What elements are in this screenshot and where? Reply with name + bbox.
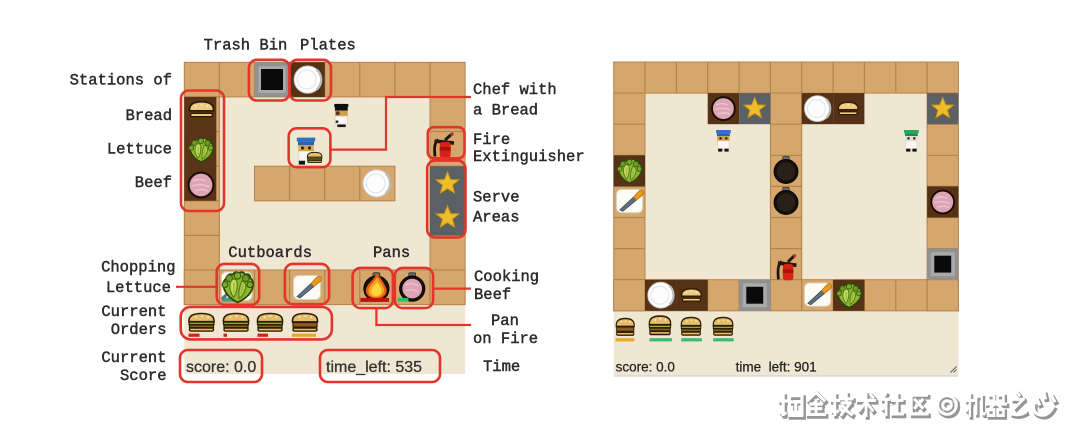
svg-text:Beef: Beef (474, 286, 511, 304)
svg-text:Areas: Areas (473, 209, 520, 227)
svg-text:Plates: Plates (300, 37, 356, 55)
svg-text:Trash Bin: Trash Bin (204, 37, 288, 55)
svg-text:Orders: Orders (111, 321, 167, 339)
svg-text:Lettuce: Lettuce (106, 279, 171, 297)
svg-text:time left: 901: time left: 901 (736, 360, 817, 375)
svg-text:score: 0.0: score: 0.0 (616, 360, 675, 375)
svg-text:score: 0.0: score: 0.0 (186, 359, 256, 376)
svg-text:Time: Time (483, 358, 520, 376)
svg-text:Cooking: Cooking (474, 268, 539, 286)
svg-text:Chopping: Chopping (101, 259, 175, 277)
svg-text:Current: Current (101, 303, 166, 321)
svg-text:Score: Score (120, 367, 167, 385)
svg-text:Cutboards: Cutboards (228, 244, 312, 262)
svg-text:Chef with: Chef with (473, 81, 557, 99)
svg-text:Bread: Bread (125, 107, 172, 125)
svg-text:Extinguisher: Extinguisher (473, 148, 585, 166)
svg-text:a Bread: a Bread (473, 101, 538, 119)
svg-text:on Fire: on Fire (473, 330, 538, 348)
svg-text:Fire: Fire (473, 131, 510, 149)
svg-text:Beef: Beef (135, 174, 172, 192)
svg-text:Serve: Serve (473, 189, 520, 207)
svg-text:Lettuce: Lettuce (107, 141, 172, 159)
svg-text:time_left: 535: time_left: 535 (326, 359, 422, 376)
svg-text:Current: Current (101, 349, 166, 367)
svg-text:Pan: Pan (491, 312, 519, 330)
svg-text:Pans: Pans (373, 244, 410, 262)
svg-text:Stations of: Stations of (70, 72, 172, 90)
